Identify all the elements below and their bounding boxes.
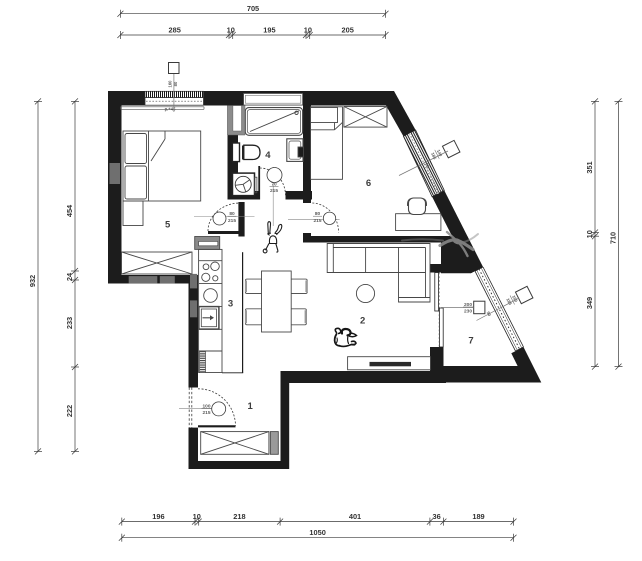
svg-text:196: 196 — [152, 512, 164, 521]
svg-text:215: 215 — [228, 218, 236, 224]
svg-text:24: 24 — [65, 272, 74, 281]
svg-text:189: 189 — [472, 512, 484, 521]
svg-text:36: 36 — [432, 512, 440, 521]
svg-text:285: 285 — [169, 25, 181, 34]
svg-text:10: 10 — [193, 512, 201, 521]
svg-text:10: 10 — [585, 230, 594, 238]
svg-text:80: 80 — [173, 81, 178, 86]
svg-text:4: 4 — [265, 150, 271, 161]
svg-text:215: 215 — [202, 410, 210, 416]
svg-text:230: 230 — [464, 309, 472, 315]
svg-text:215: 215 — [313, 218, 321, 224]
svg-text:349: 349 — [585, 297, 594, 309]
svg-text:160: 160 — [167, 80, 172, 88]
svg-text:3: 3 — [228, 298, 233, 309]
svg-text:195: 195 — [263, 25, 275, 34]
svg-text:p.+45: p.+45 — [165, 106, 176, 111]
svg-text:454: 454 — [65, 204, 74, 217]
svg-text:401: 401 — [349, 512, 361, 521]
svg-text:7: 7 — [468, 336, 473, 347]
svg-text:6: 6 — [366, 178, 371, 189]
svg-text:1050: 1050 — [309, 528, 325, 537]
svg-text:710: 710 — [609, 232, 618, 244]
svg-text:351: 351 — [585, 161, 594, 173]
svg-text:10: 10 — [227, 25, 235, 34]
svg-text:222: 222 — [65, 405, 74, 417]
svg-text:2: 2 — [360, 316, 365, 327]
svg-text:205: 205 — [342, 25, 354, 34]
svg-text:5: 5 — [165, 219, 171, 230]
svg-text:932: 932 — [28, 275, 37, 287]
svg-text:1: 1 — [248, 401, 254, 412]
svg-text:218: 218 — [233, 512, 245, 521]
svg-text:10: 10 — [304, 25, 312, 34]
svg-text:215: 215 — [270, 188, 278, 194]
svg-text:705: 705 — [247, 4, 259, 13]
svg-text:233: 233 — [65, 317, 74, 329]
